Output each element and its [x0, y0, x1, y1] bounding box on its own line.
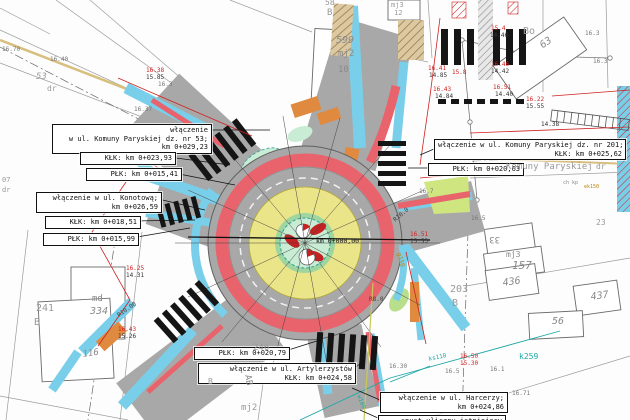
- hatch-strip-northeast: [478, 0, 493, 80]
- hatch-strip-north-left: [330, 3, 354, 56]
- site-plan: włączeniew ul. Komuny Paryskiej dz. nr 5…: [0, 0, 630, 420]
- hatch-strip-north-right: [398, 20, 424, 60]
- red-mark-1: [452, 2, 466, 18]
- sidewalk-east-hatch: [617, 86, 630, 212]
- plan-drawing: [0, 0, 630, 420]
- red-mark-2: [508, 2, 518, 14]
